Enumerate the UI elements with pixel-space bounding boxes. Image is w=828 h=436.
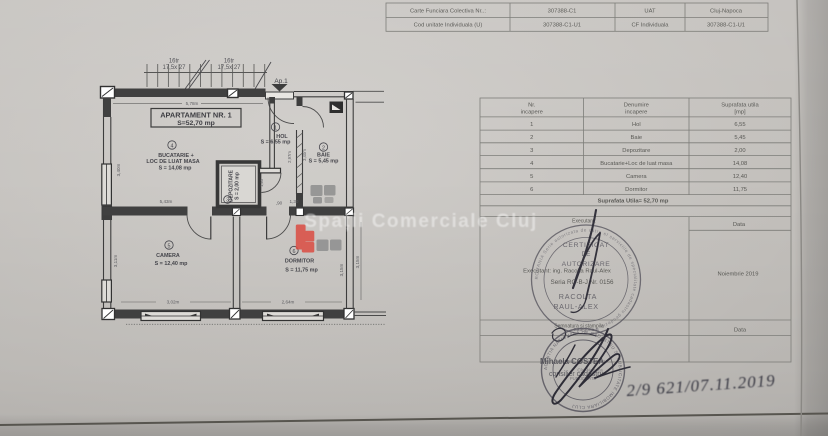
svg-text:5,43m: 5,43m: [160, 199, 173, 204]
svg-text:Bucatarie+Loc de luat masa: Bucatarie+Loc de luat masa: [600, 161, 673, 167]
svg-text:307388-C1-U1: 307388-C1-U1: [543, 23, 581, 29]
svg-text:2: 2: [530, 135, 533, 141]
svg-text:[mp]: [mp]: [734, 110, 746, 116]
svg-text:2,97m: 2,97m: [287, 151, 292, 163]
svg-text:Dormitor: Dormitor: [625, 187, 647, 193]
svg-text:Noiembrie 2019: Noiembrie 2019: [718, 271, 759, 277]
svg-text:incapere: incapere: [521, 110, 543, 116]
svg-text:S=52,70 mp: S=52,70 mp: [177, 120, 215, 127]
svg-text:Camera: Camera: [626, 174, 647, 180]
svg-text:Denumire: Denumire: [624, 103, 649, 109]
svg-text:S = 11,75 mp: S = 11,75 mp: [285, 268, 318, 274]
svg-text:Spații Comerciale Cluj: Spații Comerciale Cluj: [304, 211, 538, 232]
svg-text:Cod unitate Individuala (U): Cod unitate Individuala (U): [414, 23, 483, 29]
svg-text:6,55: 6,55: [734, 122, 745, 128]
svg-text:5: 5: [530, 174, 533, 180]
svg-text:17,5x 27: 17,5x 27: [162, 65, 186, 71]
svg-text:3,02m: 3,02m: [167, 299, 180, 304]
svg-text:5: 5: [168, 243, 171, 249]
svg-text:16tr: 16tr: [224, 59, 234, 65]
svg-text:3,40m: 3,40m: [302, 149, 307, 161]
svg-text:Seria RO-B-J Nr. 0156: Seria RO-B-J Nr. 0156: [551, 279, 614, 286]
svg-text:2,64m: 2,64m: [282, 299, 295, 304]
svg-text:S = 5,45 mp: S = 5,45 mp: [309, 158, 340, 164]
svg-text:Nr.: Nr.: [528, 103, 536, 109]
svg-text:17,5x 27: 17,5x 27: [217, 65, 241, 71]
svg-text:16tr: 16tr: [169, 59, 179, 65]
svg-text:3,40m: 3,40m: [116, 163, 121, 176]
svg-text:Data: Data: [734, 328, 747, 334]
svg-text:S = 2,00 mp: S = 2,00 mp: [235, 172, 241, 200]
svg-text:RAUL-ALEX: RAUL-ALEX: [553, 302, 598, 311]
svg-text:6: 6: [293, 249, 296, 255]
svg-text:Ap.1: Ap.1: [274, 78, 288, 85]
svg-text:Suprafata Utila= 52,70 mp: Suprafata Utila= 52,70 mp: [598, 199, 669, 205]
svg-text:Carte Funciara Colectiva Nr..:: Carte Funciara Colectiva Nr..:: [410, 8, 486, 14]
svg-text:PUBLICITATE: PUBLICITATE: [570, 376, 597, 381]
svg-text:incapere: incapere: [625, 110, 647, 116]
svg-text:1,30: 1,30: [290, 199, 299, 204]
svg-text:RACOLTA: RACOLTA: [559, 292, 597, 301]
svg-text:Depozitare: Depozitare: [622, 148, 650, 154]
svg-text:CAMERA: CAMERA: [156, 253, 180, 259]
svg-text:3,15m: 3,15m: [355, 255, 360, 268]
svg-text:,90: ,90: [276, 201, 283, 206]
svg-text:1,40: 1,40: [259, 178, 264, 187]
svg-text:AUTORIZARE: AUTORIZARE: [562, 261, 611, 268]
svg-text:4: 4: [171, 143, 174, 149]
svg-text:307388-C1-U1: 307388-C1-U1: [707, 23, 745, 29]
svg-text:CF Individuala: CF Individuala: [631, 23, 669, 29]
svg-text:Hol: Hol: [632, 122, 641, 128]
svg-text:6: 6: [530, 187, 533, 193]
svg-text:S = 12,40 mp: S = 12,40 mp: [155, 261, 189, 267]
svg-text:2: 2: [322, 145, 325, 151]
svg-text:3,15m: 3,15m: [339, 263, 344, 276]
svg-text:BUCATARIE +: BUCATARIE +: [158, 153, 194, 159]
svg-text:Baie: Baie: [630, 135, 642, 141]
svg-text:APARTAMENT NR. 1: APARTAMENT NR. 1: [160, 111, 232, 120]
svg-text:14,08: 14,08: [733, 161, 748, 167]
svg-text:5,45: 5,45: [734, 135, 745, 141]
svg-text:3: 3: [530, 148, 533, 154]
svg-text:2/9 621/07.11.2019: 2/9 621/07.11.2019: [626, 371, 776, 400]
svg-text:4: 4: [530, 161, 534, 167]
svg-text:Cluj-Napoca: Cluj-Napoca: [710, 8, 743, 14]
svg-text:Data: Data: [733, 222, 746, 228]
svg-text:3,11m: 3,11m: [113, 255, 118, 268]
svg-text:307388-C1: 307388-C1: [548, 8, 577, 14]
svg-text:2,00: 2,00: [734, 148, 745, 154]
svg-text:DORMITOR: DORMITOR: [285, 259, 314, 265]
svg-text:1: 1: [274, 125, 277, 131]
svg-text:S = 14,08 mp: S = 14,08 mp: [159, 166, 193, 172]
svg-text:12,40: 12,40: [733, 174, 748, 180]
svg-text:5,78m: 5,78m: [186, 101, 199, 106]
svg-text:UAT: UAT: [644, 8, 656, 14]
svg-text:Executant:: Executant:: [572, 219, 596, 225]
svg-text:S = 6,55 mp: S = 6,55 mp: [261, 140, 292, 146]
svg-text:LOC DE LUAT MASA: LOC DE LUAT MASA: [146, 159, 199, 165]
svg-text:11,75: 11,75: [733, 187, 747, 193]
svg-text:1: 1: [530, 122, 533, 128]
svg-text:Suprafata utila: Suprafata utila: [721, 103, 759, 109]
